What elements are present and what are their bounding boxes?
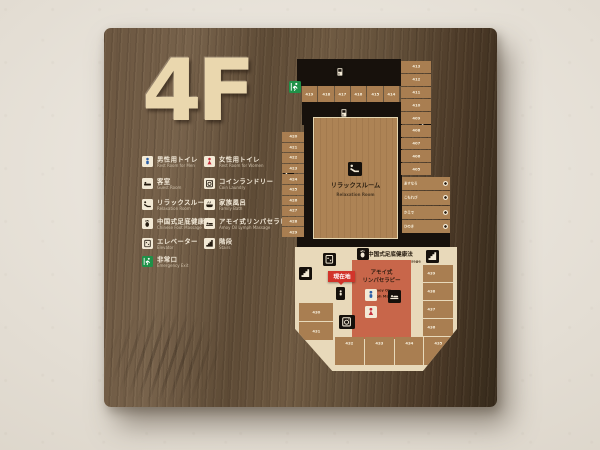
- photo-of-floor-sign: 4F 男性用トイレRest Room for Men客室Guest Roomリラ…: [0, 0, 600, 450]
- legend-item-emergency-exit: 非常口Emergency Exit: [142, 256, 220, 272]
- legend-item-coin-laundry: コインランドリーCoin Laundry: [204, 178, 287, 194]
- room-number: 406: [412, 154, 420, 158]
- room-cell: 423: [282, 164, 304, 174]
- room-cell: 439: [423, 265, 453, 282]
- family-bath-icon: [443, 224, 448, 229]
- room-number: 405: [412, 167, 420, 171]
- legend-item-text: 非常口Emergency Exit: [157, 256, 220, 272]
- room-number: 423: [289, 166, 297, 170]
- room-cell: 419: [302, 86, 317, 102]
- legend-label-en: Coin Laundry: [219, 186, 253, 190]
- legend-label-en: Chinese Foot Massage: [157, 226, 202, 230]
- room-number: 410: [412, 103, 420, 107]
- legend-label-ja: 階段: [219, 238, 237, 245]
- room-cell: 410: [401, 99, 431, 111]
- room-cell: 412: [401, 74, 431, 86]
- legend-label-ja: 家族風呂: [219, 199, 257, 206]
- relaxation-room: リラックスルーム Relaxation Room: [313, 117, 398, 239]
- room-cell: 417: [335, 86, 350, 102]
- bottom-floor-area: 中国式足底健康法 Chinese Foot Massage アモイ式 リンパセラ…: [295, 247, 457, 371]
- legend-item-text: コインランドリーCoin Laundry: [219, 178, 287, 194]
- room-cell: 428: [282, 217, 304, 227]
- legend-item-text: エレベーターElevator: [157, 238, 208, 254]
- guest-rooms-left: 420421422423424425426427428429: [282, 132, 304, 237]
- lymph-massage-area: アモイ式 リンパセラピー Amoy Oil Lymph Massage: [352, 260, 411, 339]
- room-number: 429: [289, 230, 297, 234]
- room-cell: 409: [401, 112, 431, 124]
- family-bath-icon: [443, 195, 448, 200]
- room-number: 432: [345, 341, 353, 345]
- room-number: 413: [412, 65, 420, 69]
- family-bath-cell: ひのき: [402, 220, 450, 233]
- room-cell: 432: [335, 337, 364, 365]
- legend-label-ja: エレベーター: [157, 238, 198, 245]
- room-cell: 427: [282, 206, 304, 216]
- legend-label-ja: 非常口: [157, 256, 207, 263]
- legend-label-en: Rest Room for Men: [157, 164, 195, 168]
- room-number: 411: [412, 90, 420, 94]
- room-number: 415: [371, 92, 379, 96]
- room-number: 433: [375, 341, 383, 345]
- lymph-label-ja2: リンパセラピー: [361, 277, 401, 284]
- family-bath-name: こもれび: [404, 196, 417, 201]
- room-number: 431: [312, 329, 320, 333]
- legend-item-text: 階段Stairs: [219, 238, 242, 254]
- guest-rooms-bottom-left: 430431: [299, 303, 333, 340]
- room-number: 437: [427, 307, 435, 311]
- emergency-exit-icon: [289, 81, 301, 93]
- room-cell: 406: [401, 150, 431, 162]
- coin-laundry-icon: [339, 315, 355, 329]
- mens-toilet-icon: [365, 289, 377, 301]
- relaxation-room-label-en: Relaxation Room: [335, 192, 377, 197]
- family-bath-cell: あすなろ: [402, 177, 450, 190]
- legend-label-ja: コインランドリー: [219, 178, 273, 185]
- legend-label-ja: 女性用トイレ: [219, 156, 290, 163]
- room-number: 414: [387, 92, 395, 96]
- guest-rooms-bottom-row: 432433434435: [335, 337, 453, 365]
- family-bath-cell: こもれび: [402, 191, 450, 204]
- room-number: 427: [289, 209, 297, 213]
- room-cell: 414: [384, 86, 399, 102]
- room-number: 424: [289, 177, 297, 181]
- womens-toilet-icon: [365, 306, 377, 318]
- room-cell: 429: [282, 227, 304, 237]
- mens-toilet-icon: [142, 156, 153, 167]
- legend-item-text: 客室Guest Room: [157, 178, 206, 194]
- family-bath-cell: かえで: [402, 206, 450, 219]
- room-number: 407: [412, 141, 420, 145]
- coin-laundry-icon: [204, 178, 215, 189]
- womens-toilet-icon: [204, 156, 215, 167]
- guest-rooms-right: 413412411410409408407406405: [401, 61, 431, 175]
- room-number: 425: [289, 188, 297, 192]
- family-bath-name: ひのき: [404, 224, 414, 229]
- legend-label-en: Amoy Oil Lymph Massage: [219, 226, 270, 230]
- room-number: 419: [306, 92, 314, 96]
- elevator-icon: [142, 238, 153, 249]
- current-location-badge: 現在地: [328, 271, 355, 282]
- legend-item-family-bath: 家族風呂Family Bath: [204, 199, 266, 215]
- stairs-icon: [204, 238, 215, 249]
- current-location-label: 現在地: [333, 273, 350, 281]
- lymph-label-ja1: アモイ式: [361, 269, 401, 276]
- room-number: 428: [289, 219, 297, 223]
- floor-map-board: 4F 男性用トイレRest Room for Men客室Guest Roomリラ…: [104, 28, 497, 407]
- room-number: 439: [427, 271, 435, 275]
- room-cell: 424: [282, 174, 304, 184]
- room-number: 408: [412, 129, 420, 133]
- guest-rooms-top: 419418417416415414: [302, 86, 399, 102]
- relaxation-room-label-ja: リラックスルーム: [323, 181, 388, 190]
- room-cell: 434: [395, 337, 424, 365]
- family-bath-icon: [443, 210, 448, 215]
- legend-label-en: Guest Room: [157, 186, 181, 190]
- room-number: 422: [289, 156, 297, 160]
- room-cell: 437: [423, 301, 453, 318]
- family-bath-name: あすなろ: [404, 181, 417, 186]
- legend-item-stairs: 階段Stairs: [204, 238, 242, 254]
- room-cell: 430: [299, 303, 333, 321]
- room-number: 409: [412, 116, 420, 120]
- legend-label-en: Family Bath: [219, 207, 242, 211]
- stairs-icon: [299, 267, 312, 280]
- legend-item-guest-room: 客室Guest Room: [142, 178, 206, 194]
- emergency-exit-icon: [142, 256, 153, 267]
- room-number: 421: [289, 145, 297, 149]
- guest-room-icon: [142, 178, 153, 189]
- room-cell: 431: [299, 322, 333, 340]
- room-cell: 420: [282, 132, 304, 142]
- guest-rooms-bottom-right: 439438437436: [423, 265, 453, 336]
- corridor-left: [304, 124, 313, 237]
- legend-label-en: Stairs: [219, 246, 230, 250]
- legend-label-en: Elevator: [157, 246, 183, 250]
- room-number: 436: [427, 325, 435, 329]
- room-cell: 407: [401, 138, 431, 150]
- massage-icon: [388, 290, 401, 303]
- room-cell: 426: [282, 196, 304, 206]
- relaxation-icon: [142, 199, 153, 210]
- room-number: 435: [435, 341, 443, 345]
- family-bath-icon: [443, 181, 448, 186]
- room-cell: 425: [282, 185, 304, 195]
- room-cell: 418: [318, 86, 333, 102]
- room-cell: 413: [401, 61, 431, 73]
- room-cell: 438: [423, 283, 453, 300]
- room-number: 434: [405, 341, 413, 345]
- family-bath-name: かえで: [404, 210, 414, 215]
- room-cell: 408: [401, 125, 431, 137]
- legend-label-ja: 客室: [157, 178, 196, 185]
- room-number: 416: [355, 92, 363, 96]
- floor-map: 419418417416415414 413412411410409408407…: [282, 59, 462, 373]
- floor-number: 4F: [142, 48, 251, 134]
- room-cell: 433: [365, 337, 394, 365]
- vending-machine-icon: [334, 66, 346, 78]
- room-number: 430: [312, 310, 320, 314]
- room-number: 420: [289, 135, 297, 139]
- legend-label-en: Relaxation Room: [157, 207, 191, 211]
- room-number: 417: [338, 92, 346, 96]
- room-cell: 405: [401, 163, 431, 175]
- room-number: 426: [289, 198, 297, 202]
- you-are-here-person-icon: [336, 287, 345, 300]
- family-bath-rooms: あすなろこもれびかえでひのき: [402, 177, 450, 233]
- room-number: 412: [412, 78, 420, 82]
- room-cell: 415: [367, 86, 382, 102]
- room-cell: 421: [282, 143, 304, 153]
- room-cell: 416: [351, 86, 366, 102]
- legend-label-en: Rest Room for Women: [219, 164, 263, 168]
- legend-item-text: 家族風呂Family Bath: [219, 199, 266, 215]
- family-bath-icon: [204, 199, 215, 210]
- room-number: 438: [427, 289, 435, 293]
- elevator-icon: [323, 253, 336, 266]
- legend-label-ja: リラックスルーム: [157, 199, 211, 206]
- legend-label-en: Emergency Exit: [157, 264, 188, 268]
- relaxation-icon: [348, 162, 362, 176]
- lymph-massage-icon: [204, 218, 215, 229]
- foot-massage-icon: [142, 218, 153, 229]
- room-cell: 436: [423, 319, 453, 336]
- corridor-top: [297, 59, 401, 86]
- room-cell: 435: [424, 337, 453, 365]
- room-cell: 411: [401, 87, 431, 99]
- room-number: 418: [322, 92, 330, 96]
- stairs-icon: [426, 250, 439, 263]
- room-cell: 422: [282, 153, 304, 163]
- foot-massage-label-ja: 中国式足底健康法: [368, 251, 410, 259]
- legend-item-elevator: エレベーターElevator: [142, 238, 208, 254]
